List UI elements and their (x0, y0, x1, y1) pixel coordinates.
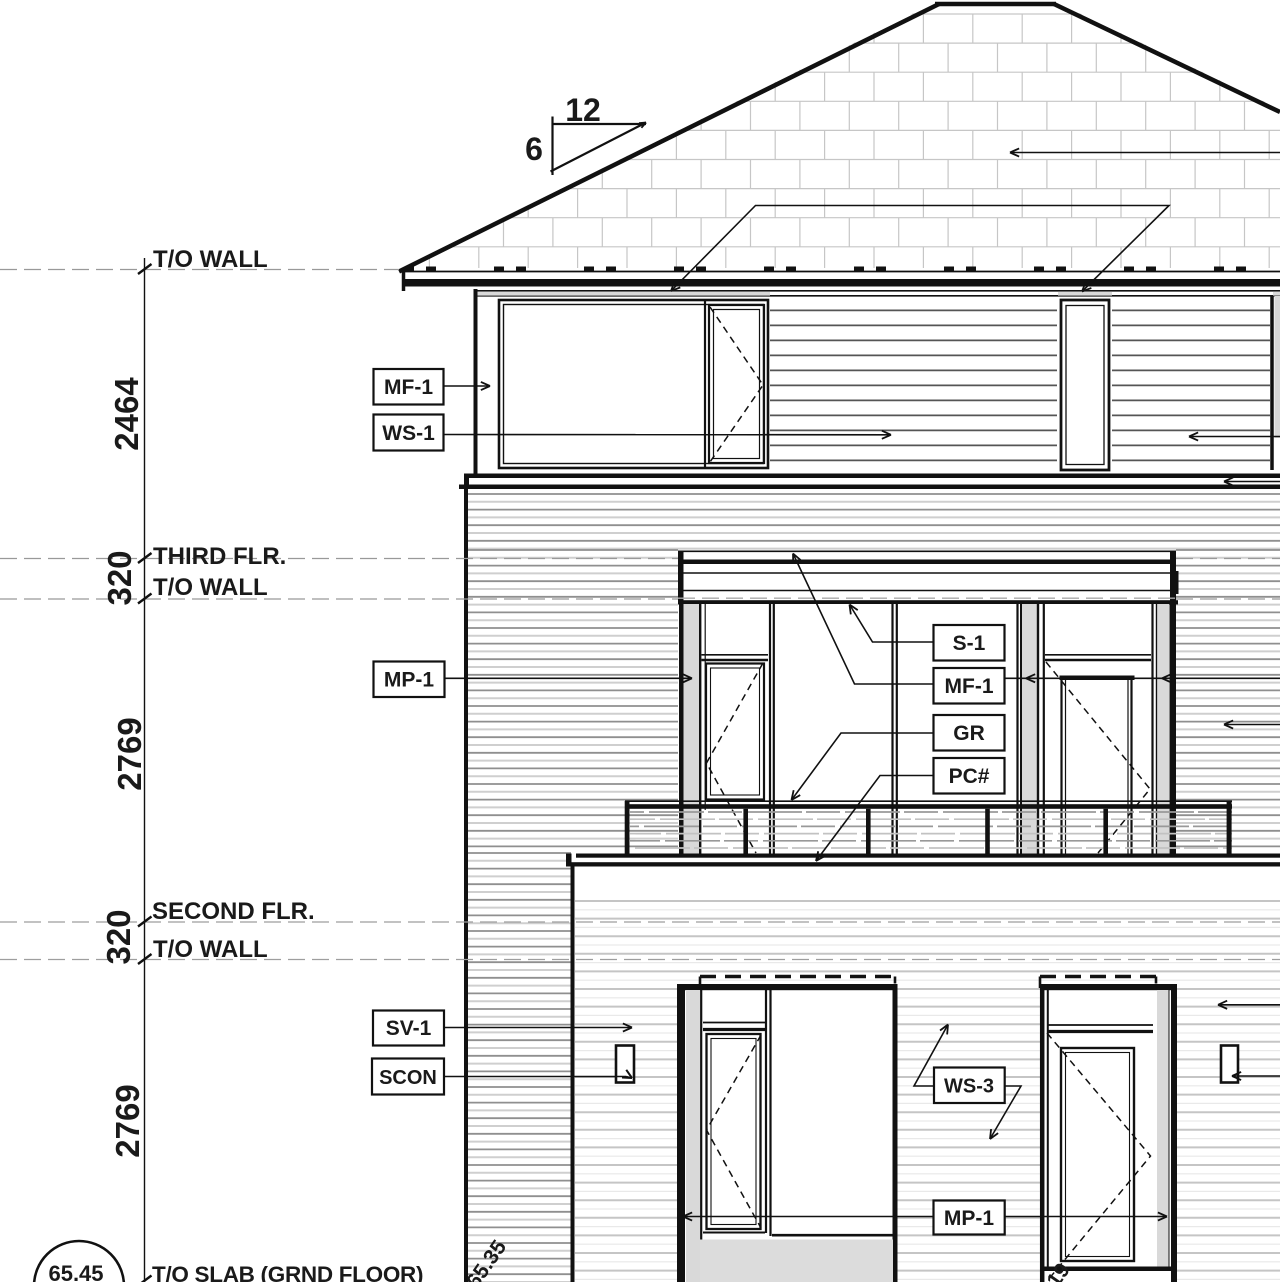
svg-text:MF-1: MF-1 (384, 376, 433, 399)
svg-text:2769: 2769 (111, 717, 148, 790)
svg-text:MP-1: MP-1 (944, 1207, 994, 1230)
svg-text:T/O WALL: T/O WALL (153, 574, 268, 601)
svg-text:320: 320 (100, 909, 137, 964)
svg-text:MF-1: MF-1 (945, 675, 994, 698)
svg-text:PC#: PC# (949, 765, 990, 788)
svg-text:SV-1: SV-1 (386, 1017, 432, 1040)
svg-text:S-1: S-1 (953, 632, 986, 655)
svg-text:12: 12 (565, 92, 601, 128)
svg-text:6: 6 (525, 131, 543, 167)
svg-text:SCON: SCON (379, 1067, 437, 1089)
svg-text:WS-1: WS-1 (382, 422, 435, 445)
svg-text:SECOND FLR.: SECOND FLR. (152, 898, 315, 925)
svg-text:THIRD FLR.: THIRD FLR. (153, 543, 286, 570)
svg-text:MP-1: MP-1 (384, 669, 434, 692)
svg-text:T/O WALL: T/O WALL (153, 936, 268, 963)
svg-text:T/O WALL: T/O WALL (153, 246, 268, 273)
svg-text:GR: GR (953, 722, 985, 745)
svg-text:2769: 2769 (109, 1084, 146, 1157)
svg-text:T/O SLAB (GRND FLOOR): T/O SLAB (GRND FLOOR) (152, 1262, 423, 1282)
svg-text:2464: 2464 (108, 377, 145, 451)
svg-text:65.45: 65.45 (48, 1261, 103, 1282)
svg-text:320: 320 (101, 550, 138, 605)
svg-text:WS-3: WS-3 (944, 1076, 994, 1098)
